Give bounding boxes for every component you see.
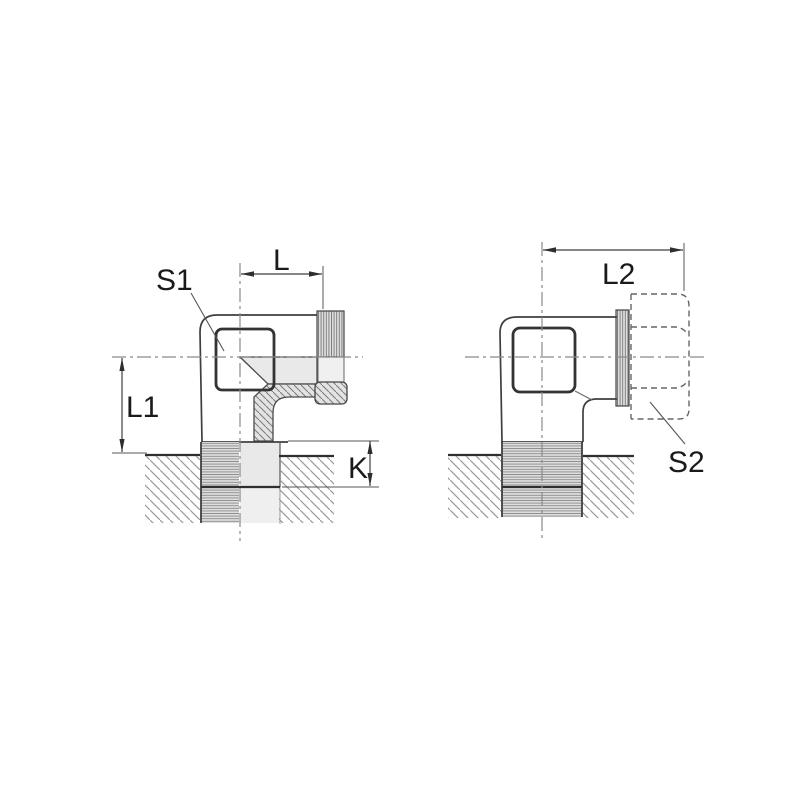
stud-section-upper xyxy=(240,443,280,487)
dimension-L: L xyxy=(241,244,323,309)
arrow-left-icon xyxy=(543,247,556,252)
arrow-right-icon xyxy=(309,271,322,276)
nut-facet-bottom xyxy=(631,381,687,388)
elbow-body-fill xyxy=(500,317,617,442)
mount-hatch-left xyxy=(145,456,200,523)
dimension-L2: L2 xyxy=(543,243,684,291)
technical-drawing-canvas: L L1 K S1 xyxy=(0,0,800,800)
arrow-right-icon xyxy=(670,247,683,252)
arrow-down-icon xyxy=(119,439,124,452)
arrow-left-icon xyxy=(241,271,254,276)
arrow-up-icon xyxy=(367,441,372,454)
mount-hatch-right xyxy=(583,457,634,518)
dimension-L2-label: L2 xyxy=(602,258,635,291)
stud-thread xyxy=(201,442,239,523)
left-fitting-view: L L1 K S1 xyxy=(112,244,379,541)
arrow-up-icon xyxy=(119,358,124,371)
callout-S2-label: S2 xyxy=(668,446,705,479)
callout-S1-label: S1 xyxy=(156,264,193,297)
side-port-nose xyxy=(318,357,344,383)
mount-hatch-left xyxy=(448,456,501,518)
elbow-body-right-outline xyxy=(583,399,617,442)
dimension-L1-label: L1 xyxy=(126,391,159,424)
side-port-lug xyxy=(315,382,347,404)
right-fitting-view: L2 S2 xyxy=(448,242,706,541)
fitting-drawing: L L1 K S1 xyxy=(0,0,800,800)
stud-section-lower xyxy=(240,488,280,523)
dimension-L1: L1 xyxy=(112,358,159,453)
callout-S2: S2 xyxy=(650,402,705,479)
arrow-down-icon xyxy=(367,473,372,486)
side-port-thread xyxy=(317,311,344,357)
dimension-K-label: K xyxy=(348,452,368,485)
side-port-thread xyxy=(616,310,629,406)
nut-facet-top xyxy=(631,327,687,334)
mount-hatch-right xyxy=(279,457,334,523)
dimension-L-label: L xyxy=(273,244,290,277)
callout-S2-leader xyxy=(650,402,685,444)
